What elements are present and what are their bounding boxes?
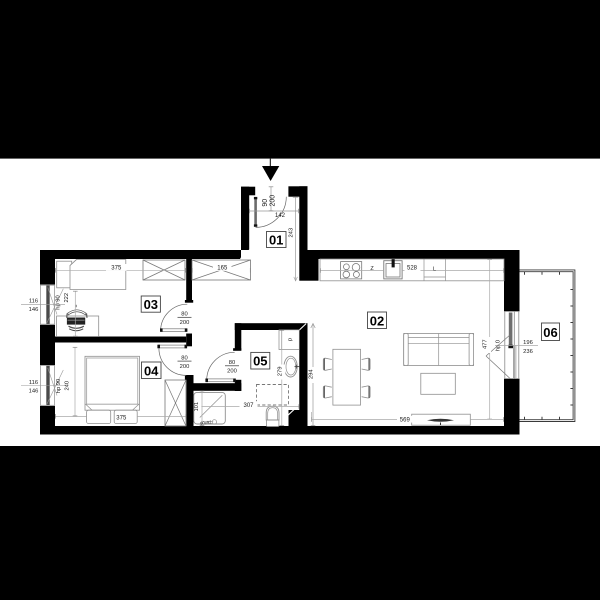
svg-text:p: p — [288, 338, 294, 341]
svg-text:477: 477 — [483, 339, 489, 349]
svg-text:236: 236 — [523, 349, 533, 355]
svg-text:80: 80 — [181, 312, 187, 318]
svg-text:146: 146 — [29, 307, 39, 313]
svg-text:243: 243 — [288, 228, 294, 238]
svg-text:80: 80 — [181, 355, 187, 361]
svg-text:294: 294 — [309, 369, 315, 379]
svg-text:375: 375 — [111, 266, 122, 272]
svg-text:01: 01 — [269, 233, 283, 248]
svg-text:L: L — [433, 266, 436, 272]
svg-text:142: 142 — [275, 213, 286, 219]
svg-text:200: 200 — [180, 320, 190, 326]
svg-text:06: 06 — [543, 325, 557, 340]
svg-text:02: 02 — [370, 313, 384, 328]
svg-text:hp 90: hp 90 — [56, 295, 62, 310]
svg-text:375: 375 — [116, 415, 127, 421]
svg-text:90: 90 — [262, 199, 269, 207]
svg-text:03: 03 — [144, 297, 158, 312]
svg-text:101: 101 — [194, 402, 200, 412]
svg-text:80: 80 — [229, 360, 235, 366]
svg-text:04: 04 — [144, 363, 159, 378]
svg-text:200: 200 — [269, 195, 276, 207]
svg-text:240: 240 — [65, 381, 71, 391]
svg-text:196: 196 — [523, 340, 533, 346]
svg-text:200: 200 — [180, 364, 190, 370]
svg-text:307: 307 — [243, 403, 254, 409]
svg-text:222: 222 — [64, 293, 70, 303]
svg-text:569: 569 — [400, 417, 411, 423]
svg-text:279: 279 — [278, 367, 284, 377]
svg-text:165: 165 — [217, 266, 228, 272]
svg-text:116: 116 — [29, 380, 38, 386]
svg-text:146: 146 — [29, 388, 39, 394]
svg-text:05: 05 — [253, 354, 267, 369]
svg-text:200: 200 — [227, 369, 237, 375]
svg-text:116: 116 — [29, 299, 38, 305]
svg-text:528: 528 — [407, 266, 418, 272]
svg-text:hp 90: hp 90 — [56, 379, 62, 394]
